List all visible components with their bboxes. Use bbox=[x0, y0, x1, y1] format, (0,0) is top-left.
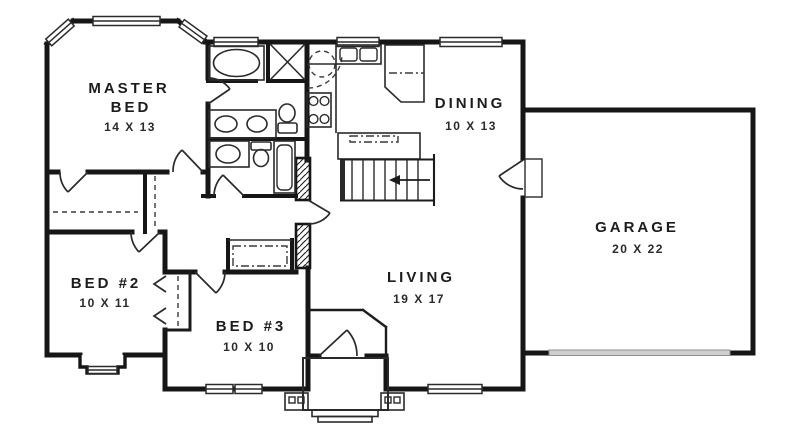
refrigerator-counter bbox=[385, 45, 424, 102]
garage-entry-door bbox=[499, 159, 542, 197]
porch-step bbox=[318, 417, 372, 423]
stair-landing-edge bbox=[340, 160, 345, 200]
bath-fixtures bbox=[209, 44, 305, 193]
staircase bbox=[340, 154, 434, 206]
garage-door bbox=[549, 350, 730, 356]
master-bed-label2: BED bbox=[111, 99, 152, 116]
garage-dims: 20 X 22 bbox=[612, 242, 664, 256]
garage-label: GARAGE bbox=[595, 219, 679, 236]
hall-closet bbox=[228, 240, 292, 266]
hatched-chase-walls bbox=[296, 158, 310, 268]
kitchen-sink bbox=[336, 45, 381, 64]
hall-bath-tub bbox=[274, 141, 295, 193]
master-bay-window bbox=[46, 17, 207, 46]
dining-window bbox=[440, 38, 502, 47]
master-toilet bbox=[278, 104, 297, 133]
front-door bbox=[319, 330, 357, 356]
master-closet-door bbox=[60, 172, 88, 192]
living-window bbox=[428, 385, 482, 394]
bed3-door bbox=[195, 272, 225, 293]
master-bed-door bbox=[173, 150, 203, 172]
garden-tub bbox=[209, 46, 264, 80]
bed2-box-bay-window bbox=[80, 355, 125, 374]
porch-post-right bbox=[381, 393, 404, 410]
dining-label: DINING bbox=[435, 95, 506, 112]
linen-closet-x bbox=[270, 44, 305, 80]
floor-plan-svg: MASTER BED 14 X 13 DINING 10 X 13 GARAGE… bbox=[0, 0, 800, 439]
kitchen-island bbox=[338, 133, 420, 159]
bed3-dims: 10 X 10 bbox=[223, 340, 275, 354]
living-label: LIVING bbox=[387, 269, 455, 286]
bed2-door bbox=[131, 232, 160, 252]
hall-bath-toilet bbox=[251, 142, 271, 167]
bed2-label: BED #2 bbox=[71, 275, 142, 292]
bath-window bbox=[214, 38, 258, 47]
floor-plan-image: MASTER BED 14 X 13 DINING 10 X 13 GARAGE… bbox=[0, 0, 800, 439]
hall-living-door bbox=[308, 200, 330, 224]
corner-pantry bbox=[308, 51, 342, 88]
kitchen bbox=[307, 45, 424, 159]
range-stove bbox=[307, 93, 331, 127]
bed2-closet-bifold-doors bbox=[154, 276, 166, 324]
master-bed-label: MASTER bbox=[88, 80, 169, 97]
room-labels: MASTER BED 14 X 13 DINING 10 X 13 GARAGE… bbox=[71, 80, 679, 354]
bed2-dims: 10 X 11 bbox=[79, 296, 130, 310]
dining-dims: 10 X 13 bbox=[445, 119, 497, 133]
master-vanity bbox=[209, 110, 276, 138]
porch-post-left bbox=[285, 393, 308, 410]
stairs-direction-arrow bbox=[389, 175, 430, 185]
master-bed-dims: 14 X 13 bbox=[104, 120, 156, 134]
bed3-label: BED #3 bbox=[216, 318, 287, 335]
hall-bath-vanity bbox=[209, 141, 249, 167]
hall-bath-door bbox=[214, 175, 244, 196]
exterior-walls bbox=[47, 21, 753, 389]
living-dims: 19 X 17 bbox=[393, 292, 445, 306]
